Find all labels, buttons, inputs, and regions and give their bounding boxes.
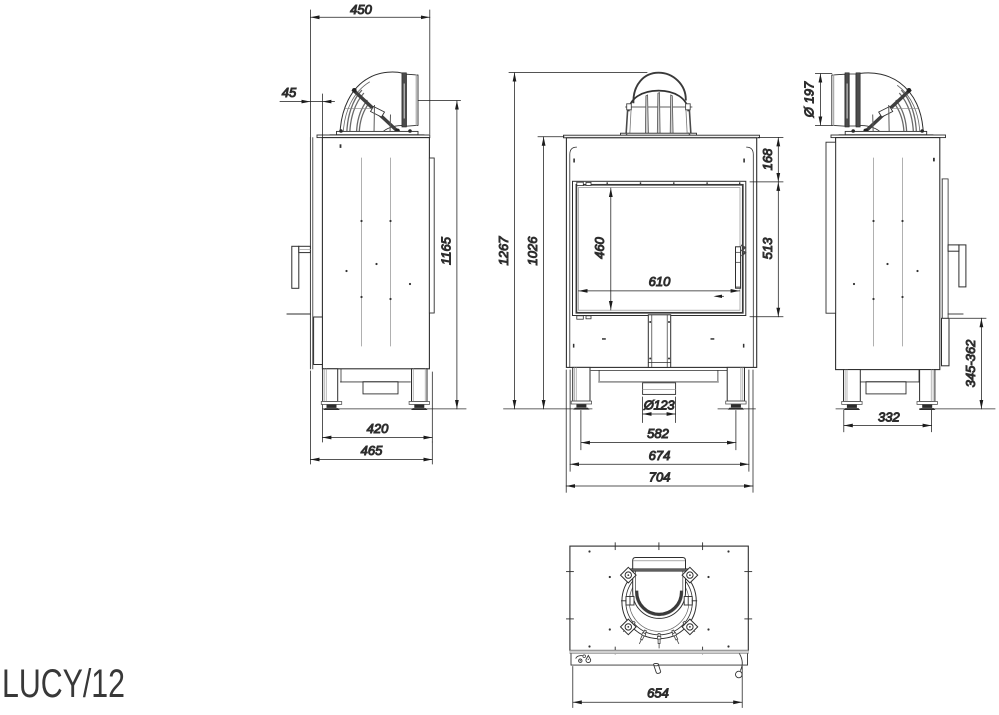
svg-text:168: 168 [760,148,775,170]
svg-text:704: 704 [649,470,671,485]
svg-text:654: 654 [647,686,669,701]
svg-text:420: 420 [367,421,389,436]
svg-text:465: 465 [361,443,383,458]
svg-text:345-362: 345-362 [963,339,978,387]
svg-text:Ø123: Ø123 [643,397,676,412]
svg-text:582: 582 [647,426,669,441]
svg-text:1267: 1267 [496,236,511,266]
svg-text:610: 610 [649,274,671,289]
svg-text:45: 45 [282,85,297,100]
svg-text:450: 450 [350,2,372,17]
svg-text:1165: 1165 [439,236,454,265]
svg-text:Ø 197: Ø 197 [802,81,817,118]
svg-text:460: 460 [592,236,607,258]
svg-text:674: 674 [649,448,671,463]
svg-text:332: 332 [878,409,900,424]
svg-text:LUCY/12: LUCY/12 [2,662,125,706]
svg-text:513: 513 [760,237,775,259]
svg-text:1026: 1026 [525,236,540,266]
